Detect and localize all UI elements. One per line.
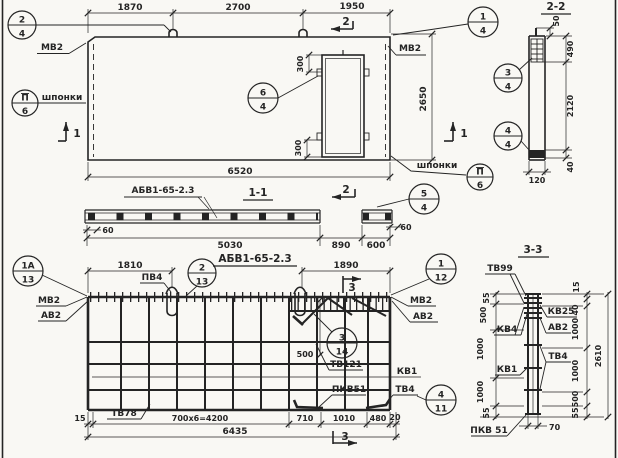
dim-300-top: 300 bbox=[296, 55, 305, 72]
dim-1000-left-b: 1000 bbox=[476, 380, 485, 403]
callout-den: 4 bbox=[19, 30, 25, 40]
section-2-2: 2-2 50 490 bbox=[494, 1, 575, 185]
callout-1-12: 1 12 bbox=[391, 254, 456, 295]
dim-15-right: 15 bbox=[572, 281, 581, 293]
callout-den: 4 bbox=[505, 141, 511, 151]
technical-drawing: 1870 2700 1950 6520 2650 300 bbox=[0, 0, 618, 458]
dim-480: 480 bbox=[370, 414, 387, 423]
callout-num: П bbox=[21, 94, 29, 104]
label-av2-right: АВ2 bbox=[413, 312, 433, 322]
callout-3-4: 3 4 bbox=[494, 58, 532, 93]
cut-mark-2-bottom: 2 bbox=[332, 184, 355, 200]
dim-1000-left-a: 1000 bbox=[476, 337, 485, 360]
dim-1890: 1890 bbox=[333, 261, 358, 271]
callout-den: 4 bbox=[260, 103, 266, 113]
dim-60-right: 60 bbox=[400, 223, 412, 232]
callout-2-13: 2 13 bbox=[186, 259, 216, 296]
dim-700x6: 700x6=4200 bbox=[172, 414, 229, 423]
cut-label-3: 3 bbox=[348, 282, 355, 294]
section-title: 1-1 bbox=[249, 187, 268, 199]
panel-width-dim: 6520 bbox=[85, 162, 393, 181]
dim-40-right: 40 bbox=[571, 304, 580, 316]
dim-1810: 1810 bbox=[117, 261, 142, 271]
label-tv4: ТВ4 bbox=[548, 352, 567, 362]
callout-num: 1А bbox=[21, 262, 34, 272]
callout-num: 3 bbox=[339, 334, 345, 344]
section-2-2-body bbox=[529, 28, 545, 160]
drawing-sheet: 1870 2700 1950 6520 2650 300 bbox=[0, 0, 618, 458]
dim-50: 50 bbox=[552, 15, 561, 27]
callout-num: 1 bbox=[480, 13, 486, 23]
label-mv2-right: МВ2 bbox=[399, 44, 421, 54]
callout-p-6-right: П 6 bbox=[467, 164, 493, 191]
callout-den: 12 bbox=[435, 274, 448, 284]
dim-15: 15 bbox=[74, 414, 86, 423]
section-1-1-body bbox=[85, 210, 392, 223]
label-kv1: КВ1 bbox=[397, 367, 417, 377]
label-av2-left: АВ2 bbox=[41, 311, 61, 321]
dim-1000-right-a: 1000 bbox=[571, 317, 580, 340]
dim-70-width: 70 bbox=[549, 423, 561, 432]
cage-mesh bbox=[88, 287, 421, 410]
callout-den: 13 bbox=[196, 278, 209, 288]
dim-55-right: 55 bbox=[571, 407, 580, 419]
label-keys-left: шпонки bbox=[42, 93, 83, 103]
callout-4-4: 4 4 bbox=[494, 122, 530, 151]
cut-mark-3-top: 3 bbox=[343, 276, 361, 294]
panel-mark-label: АБВ1-65-2.3 bbox=[132, 186, 195, 196]
dim-2650: 2650 bbox=[419, 86, 429, 111]
callout-6-4: 6 4 bbox=[248, 76, 318, 113]
dim-55-top-left: 55 bbox=[482, 292, 491, 304]
callout-den: 6 bbox=[477, 181, 483, 191]
dim-500-right: 500 bbox=[571, 390, 580, 407]
lifting-loop-icon bbox=[299, 30, 307, 38]
cage-title: АБВ1-65-2.3 bbox=[218, 253, 291, 265]
section-title: 3-3 bbox=[524, 244, 543, 256]
label-kv1: КВ1 bbox=[497, 365, 517, 375]
callout-num: 4 bbox=[505, 127, 511, 137]
callout-1a-13: 1А 13 bbox=[13, 256, 87, 296]
dim-2700: 2700 bbox=[225, 3, 250, 13]
callout-num: 5 bbox=[421, 190, 427, 200]
callout-p-6-left: П 6 bbox=[12, 90, 38, 117]
callout-den: 6 bbox=[22, 107, 28, 117]
label-pv4: ПВ4 bbox=[142, 273, 163, 283]
callout-3-14: 3 14 bbox=[314, 314, 357, 358]
callout-num: 2 bbox=[199, 264, 205, 274]
label-tv121: ТВ121 bbox=[330, 360, 362, 370]
dim-40: 40 bbox=[566, 161, 575, 173]
callout-den: 13 bbox=[22, 276, 35, 286]
dim-6520: 6520 bbox=[227, 167, 252, 177]
label-av2: АВ2 bbox=[548, 323, 568, 333]
section-title: 2-2 bbox=[547, 1, 566, 13]
label-tv4: ТВ4 bbox=[395, 385, 414, 395]
callout-den: 11 bbox=[435, 405, 448, 415]
dim-890: 890 bbox=[332, 241, 351, 251]
dim-490: 490 bbox=[566, 40, 575, 57]
section-3-3-body bbox=[524, 294, 542, 414]
section-1-1-dims: 60 60 5030 890 600 bbox=[83, 223, 412, 251]
dim-2120: 2120 bbox=[566, 94, 575, 117]
dim-1950: 1950 bbox=[339, 2, 364, 12]
callout-den: 4 bbox=[480, 27, 486, 37]
label-keys-right: шпонки bbox=[417, 161, 458, 171]
dim-300-bottom: 300 bbox=[294, 139, 303, 156]
label-tv99: ТВ99 bbox=[487, 264, 513, 274]
dim-60-left: 60 bbox=[102, 226, 114, 235]
cut-label-1: 1 bbox=[460, 128, 467, 140]
dim-1000-right-b: 1000 bbox=[571, 359, 580, 382]
dim-1870: 1870 bbox=[117, 3, 142, 13]
pkv51-bar bbox=[366, 399, 390, 408]
callout-num: 1 bbox=[438, 260, 444, 270]
callout-num: 4 bbox=[438, 391, 444, 401]
dim-5030: 5030 bbox=[217, 241, 242, 251]
cage-labels: ПВ4 МВ2 АВ2 МВ2 АВ2 ТВ121 КВ1 ПКВ51 ТВ4 bbox=[36, 273, 438, 419]
cut-mark-3-bottom: 3 bbox=[333, 431, 357, 446]
callout-den: 4 bbox=[505, 83, 511, 93]
dim-710: 710 bbox=[297, 414, 314, 423]
cut-mark-1-right: 1 bbox=[444, 122, 468, 141]
callout-num: 2 bbox=[19, 16, 25, 26]
callout-num: П bbox=[476, 168, 484, 178]
callout-2-4: 2 4 bbox=[8, 11, 171, 40]
callout-den: 14 bbox=[336, 348, 349, 358]
panel-opening bbox=[317, 50, 369, 157]
pkv51-bar bbox=[294, 400, 323, 408]
label-tv78: ТВ78 bbox=[111, 409, 137, 419]
dim-2610-total: 2610 bbox=[594, 344, 603, 367]
panel-labels: МВ2 шпонки МВ2 шпонки bbox=[37, 43, 466, 175]
cage-plan: АБВ1-65-2.3 bbox=[13, 253, 456, 446]
dim-500: 500 bbox=[297, 350, 314, 359]
label-mv2-left: МВ2 bbox=[38, 296, 60, 306]
cut-label-2: 2 bbox=[342, 16, 349, 28]
callout-den: 4 bbox=[421, 204, 427, 214]
panel-plan: 1870 2700 1950 6520 2650 300 bbox=[8, 2, 498, 191]
dim-20: 20 bbox=[389, 413, 401, 422]
cut-label-1: 1 bbox=[73, 128, 80, 140]
dim-500-left: 500 bbox=[479, 306, 488, 323]
cut-mark-2-top: 2 bbox=[331, 16, 353, 32]
section-3-3: 3-3 ТВ99 КВ25 АВ2 bbox=[470, 244, 611, 436]
dim-6435: 6435 bbox=[222, 427, 247, 437]
label-pkv51: ПКВ51 bbox=[332, 385, 366, 395]
section-1-1: 1-1 АБВ1-65-2.3 2 bbox=[83, 184, 439, 251]
panel-outline bbox=[88, 30, 390, 161]
callout-1-4: 1 4 bbox=[393, 7, 498, 37]
cut-mark-1-left: 1 bbox=[58, 122, 81, 141]
dim-120: 120 bbox=[529, 176, 546, 185]
callout-num: 3 bbox=[505, 69, 511, 79]
label-mv2-right: МВ2 bbox=[410, 296, 432, 306]
label-pkv51: ПКВ 51 bbox=[470, 426, 507, 436]
callout-4-11: 4 11 bbox=[417, 385, 456, 415]
callout-num: 6 bbox=[260, 89, 266, 99]
cut-label-2: 2 bbox=[342, 184, 349, 196]
dim-1010: 1010 bbox=[333, 414, 356, 423]
dim-600: 600 bbox=[367, 241, 386, 251]
opening-dims: 300 300 bbox=[294, 52, 322, 160]
label-mv2-left: МВ2 bbox=[41, 43, 63, 53]
